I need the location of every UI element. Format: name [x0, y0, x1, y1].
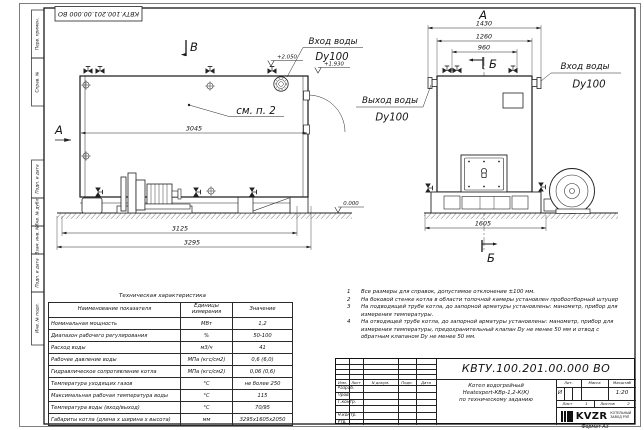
param-value: 50-100	[233, 330, 293, 342]
section-label-b-bottom: Б	[487, 251, 495, 265]
table-row: Рабочее давление водыМПа (кгс/см2)0,6 (6…	[49, 354, 293, 366]
section-label-b-top: Б	[489, 57, 497, 71]
valve-icon	[453, 66, 462, 73]
tech-header-name: Наименование показателя	[49, 303, 181, 318]
tech-header-units: Единицы измерения	[181, 303, 233, 318]
param-value: 70/95	[233, 402, 293, 414]
section-label-v: В	[190, 40, 198, 54]
table-row: Габариты котла (длина х ширина х высота)…	[49, 414, 293, 426]
kvzr-logo-text: KVZR	[576, 411, 608, 422]
inlet-dn-label-front: Dy100	[572, 80, 605, 91]
param-name: Диапазон рабочего регулирования	[49, 330, 181, 342]
param-units: %	[181, 330, 233, 342]
param-units: °С	[181, 378, 233, 390]
sheets-value: 2	[627, 400, 629, 407]
dim-1430: 1430	[476, 20, 492, 28]
format-label: Формат А3	[553, 425, 637, 430]
product-name: Котел водогрейный Heatexpert-КВр-1,2-К(К…	[436, 380, 556, 413]
role-razrab: Разраб.	[338, 385, 368, 392]
blower-fan	[544, 169, 595, 214]
param-name: Расход воды	[49, 342, 181, 354]
tech-table-header-row: Наименование показателя Единицы измерени…	[49, 303, 293, 318]
tech-table: Наименование показателя Единицы измерени…	[48, 302, 293, 426]
rev-col-data: Дата	[416, 379, 436, 387]
product-line: Котел водогрейный	[436, 383, 556, 390]
dim-960: 960	[478, 44, 490, 52]
param-units: °С	[181, 402, 233, 414]
margin-label: Подп. и дата	[35, 164, 41, 194]
lit-label: Лит.	[556, 379, 581, 387]
role-utv: Утв.	[338, 419, 368, 426]
table-row: Максимальная рабочая температура воды°С1…	[49, 390, 293, 402]
view-label-a: А	[54, 123, 63, 137]
tech-header-value: Значение	[233, 303, 293, 318]
param-units: МПа (кгс/см2)	[181, 354, 233, 366]
dim-3295: 3295	[184, 239, 200, 247]
valve-icon	[509, 66, 518, 73]
note-number: 4	[347, 319, 361, 341]
dim-1260: 1260	[476, 33, 492, 41]
dim-1605: 1605	[475, 220, 491, 228]
note-text: На подводящей трубе котла, до запорной а…	[361, 304, 621, 318]
flange-right	[532, 78, 541, 89]
tech-table-title: Техническая характеристика	[48, 293, 277, 299]
rev-col-podp: Подп.	[398, 379, 416, 387]
door-swing-arc	[308, 95, 345, 132]
note-number: 2	[347, 297, 361, 304]
level-mark-icon	[315, 68, 321, 74]
boiler-side-view: 3045 3125 3295 В А +2.050 +1.930 0.000 В…	[54, 37, 364, 250]
lit-value: И	[556, 387, 564, 400]
dim-3045: 3045	[186, 125, 202, 133]
dim-3125: 3125	[172, 225, 188, 233]
product-line: Heatexpert-КВр-1,2-К(К)	[436, 390, 556, 397]
table-row: Номинальная мощностьМВт1,2	[49, 318, 293, 330]
margin-label: Инв. № дубл.	[35, 197, 41, 226]
kvzr-logo-icon	[561, 411, 573, 422]
note-item: 4На отводящей трубе котла, до запорной а…	[347, 319, 621, 341]
see-note-label: см. п. 2	[236, 106, 275, 117]
flange-left	[428, 78, 437, 89]
inlet-dn-label: Dy100	[315, 52, 348, 63]
sheet-value: 1	[585, 400, 587, 407]
drawing-notes: 1Все размеры для справок, допустимое отк…	[347, 289, 621, 341]
note-number: 1	[347, 289, 361, 296]
level-0000: 0.000	[343, 201, 359, 207]
drawing-sheet: КВТУ.100.201.00.000 ВО Перв. примен. Спр…	[0, 0, 644, 430]
front-base	[431, 192, 541, 213]
margin-label: Перв. примен.	[35, 18, 41, 50]
valve-icon	[206, 67, 215, 74]
inspection-panel	[503, 93, 523, 108]
param-name: Рабочее давление воды	[49, 354, 181, 366]
param-value: 41	[233, 342, 293, 354]
valve-icon	[425, 184, 432, 193]
param-units: МВт	[181, 318, 233, 330]
product-line: по техническому заданию	[436, 397, 556, 404]
param-value: 0,06 (0,6)	[233, 366, 293, 378]
param-name: Номинальная мощность	[49, 318, 181, 330]
table-row: Температура уходящих газов°Сне более 250	[49, 378, 293, 390]
param-name: Габариты котла (длина х ширина х высота)	[49, 414, 181, 426]
tech-characteristics: Техническая характеристика Наименование …	[48, 293, 277, 426]
note-item: 2На боковой стенке котла в области топоч…	[347, 297, 621, 304]
margin-label: Инв. № подл.	[35, 303, 41, 333]
company-name: КОТЕЛЬНЫЙ ЗАВОД РЭП	[610, 412, 631, 420]
inlet-water-label: Вход воды	[308, 37, 357, 47]
param-units: м3/ч	[181, 342, 233, 354]
sheet-label: Лист	[562, 400, 572, 407]
table-row: Температура воды (вход/выход)°С70/95	[49, 402, 293, 414]
level-mark-icon	[335, 207, 341, 213]
mass-label: Масса	[581, 379, 608, 387]
scale-label: Масштаб	[608, 379, 636, 387]
level-mark-icon	[268, 61, 274, 67]
valve-icon	[268, 67, 277, 74]
outlet-water-label: Выход воды	[362, 96, 418, 106]
param-units: МПа (кгс/см2)	[181, 366, 233, 378]
margin-label: Справ. №	[35, 71, 41, 92]
margin-labels: Перв. примен. Справ. № Подп. и дата Инв.…	[35, 18, 41, 333]
param-units: °С	[181, 390, 233, 402]
note-text: На отводящей трубе котла, до запорной ар…	[361, 319, 621, 341]
param-value: 1,2	[233, 318, 293, 330]
rev-col-ndok: N докум.	[363, 379, 398, 387]
valve-icon	[443, 66, 452, 73]
role-prov: Пров.	[338, 392, 368, 399]
role-empty	[338, 405, 368, 412]
doc-number: КВТУ.100.201.00.000 ВО	[436, 359, 636, 379]
sheets-label: Листов	[600, 400, 615, 407]
sheets-cell: Листов 2	[594, 400, 636, 407]
param-value: 3295х1605х2050	[233, 414, 293, 426]
margin-label: Подп. и дата	[35, 258, 41, 288]
valve-icon	[96, 67, 105, 74]
param-value: 0,6 (6,0)	[233, 354, 293, 366]
company-line: ЗАВОД РЭП	[610, 416, 631, 420]
param-value: не более 250	[233, 378, 293, 390]
inlet-water-label-front: Вход воды	[560, 62, 609, 72]
note-item: 1Все размеры для справок, допустимое отк…	[347, 289, 621, 296]
margin-label: Взам. инв. №	[35, 225, 41, 255]
note-text: На боковой стенке котла в области топочн…	[361, 297, 621, 304]
stamp-doc-number: КВТУ.100.201.00.000 ВО	[58, 10, 139, 18]
param-name: Температура воды (вход/выход)	[49, 402, 181, 414]
top-designation-stamp: КВТУ.100.201.00.000 ВО	[55, 7, 142, 22]
param-name: Температура уходящих газов	[49, 378, 181, 390]
table-row: Гидравлическое сопротивление котлаМПа (к…	[49, 366, 293, 378]
company-cell: KVZR КОТЕЛЬНЫЙ ЗАВОД РЭП	[556, 407, 636, 425]
burner-door	[461, 155, 507, 193]
param-value: 115	[233, 390, 293, 402]
valve-icon	[538, 183, 545, 192]
param-name: Максимальная рабочая температура воды	[49, 390, 181, 402]
param-name: Гидравлическое сопротивление котла	[49, 366, 181, 378]
note-text: Все размеры для справок, допустимое откл…	[361, 289, 621, 296]
note-item: 3На подводящей трубе котла, до запорной …	[347, 304, 621, 318]
table-row: Диапазон рабочего регулирования%50-100	[49, 330, 293, 342]
note-number: 3	[347, 304, 361, 318]
title-block: Изм. Лист N докум. Подп. Дата Разраб. Пр…	[335, 358, 635, 424]
boiler-front-view: А 1430 1260 960 Б 1605 Б Выход воды	[356, 8, 621, 265]
table-row: Расход водым3/ч41	[49, 342, 293, 354]
flange-top	[274, 77, 288, 91]
outlet-dn-label: Dy100	[375, 113, 408, 124]
sheet-cell: Лист 1	[556, 400, 594, 407]
valve-icon	[84, 67, 93, 74]
scale-value: 1:20	[608, 387, 636, 400]
role-nkontr: Н.контр.	[338, 412, 368, 419]
level-2050: +2.050	[277, 55, 298, 61]
param-units: мм	[181, 414, 233, 426]
